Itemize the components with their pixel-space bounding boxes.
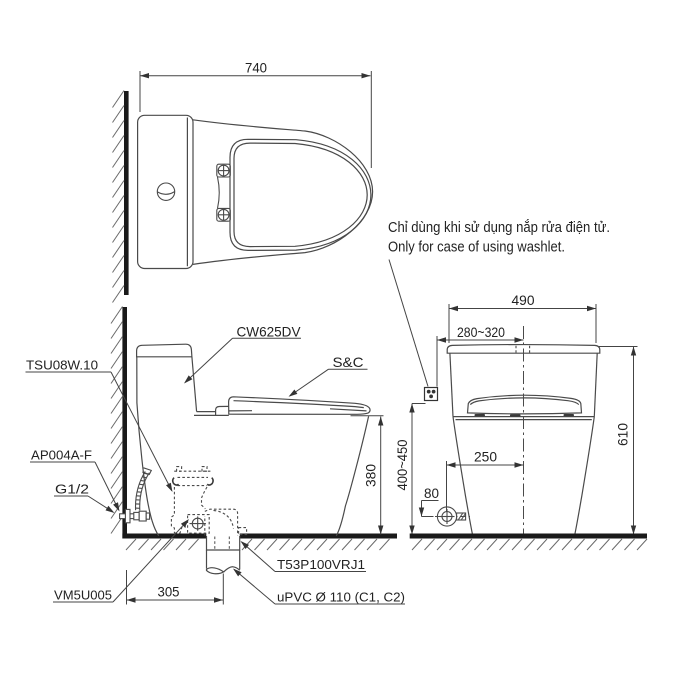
svg-text:G1/2: G1/2 xyxy=(55,482,89,497)
svg-text:740: 740 xyxy=(245,60,267,76)
svg-text:Only for case of using washlet: Only for case of using washlet. xyxy=(388,240,565,256)
svg-text:VM5U005: VM5U005 xyxy=(54,588,112,603)
svg-text:80: 80 xyxy=(424,486,439,501)
svg-text:AP004A-F: AP004A-F xyxy=(31,448,92,463)
svg-text:610: 610 xyxy=(615,423,631,446)
svg-text:280~320: 280~320 xyxy=(457,324,505,340)
svg-text:305: 305 xyxy=(158,585,180,600)
svg-text:T53P100VRJ1: T53P100VRJ1 xyxy=(277,557,365,572)
svg-text:S&C: S&C xyxy=(333,354,364,370)
svg-text:490: 490 xyxy=(512,292,535,308)
svg-text:Chỉ dùng khi sử dụng nắp rửa đ: Chỉ dùng khi sử dụng nắp rửa điện tử. xyxy=(388,219,610,236)
svg-text:CW625DV: CW625DV xyxy=(237,324,302,340)
svg-text:400~450: 400~450 xyxy=(395,440,410,491)
svg-text:380: 380 xyxy=(363,464,379,487)
svg-text:250: 250 xyxy=(474,449,497,465)
svg-text:uPVC Ø 110 (C1, C2): uPVC Ø 110 (C1, C2) xyxy=(277,590,405,605)
svg-text:TSU08W.10: TSU08W.10 xyxy=(26,358,98,373)
